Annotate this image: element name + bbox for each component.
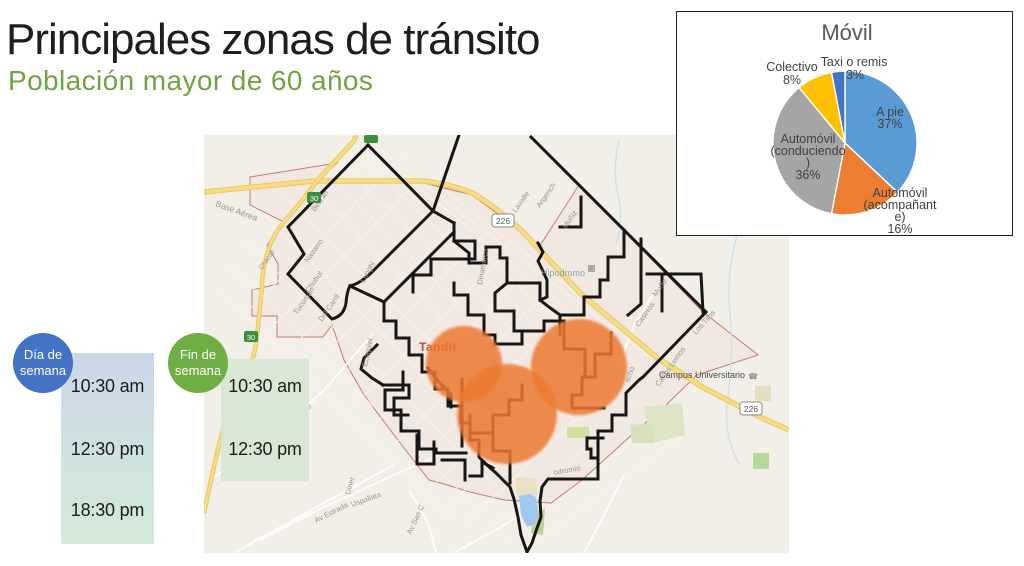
svg-text:8%: 8% xyxy=(783,73,801,87)
svg-text:30: 30 xyxy=(310,194,318,203)
svg-text:Taxi o remis: Taxi o remis xyxy=(821,55,888,69)
svg-text:3%: 3% xyxy=(846,68,864,82)
svg-text:Hipodromo: Hipodromo xyxy=(541,268,585,278)
svg-text:226: 226 xyxy=(744,404,758,414)
svg-text:Móvil: Móvil xyxy=(821,20,872,45)
svg-text:30: 30 xyxy=(247,333,255,342)
svg-text:36%: 36% xyxy=(795,168,820,182)
svg-text:16%: 16% xyxy=(887,222,912,235)
svg-text:Campus Universitario: Campus Universitario xyxy=(659,370,745,380)
svg-text:37%: 37% xyxy=(877,117,902,131)
svg-text:☎: ☎ xyxy=(748,372,758,381)
svg-text:Colectivo: Colectivo xyxy=(766,60,817,74)
svg-text:226: 226 xyxy=(496,216,510,226)
